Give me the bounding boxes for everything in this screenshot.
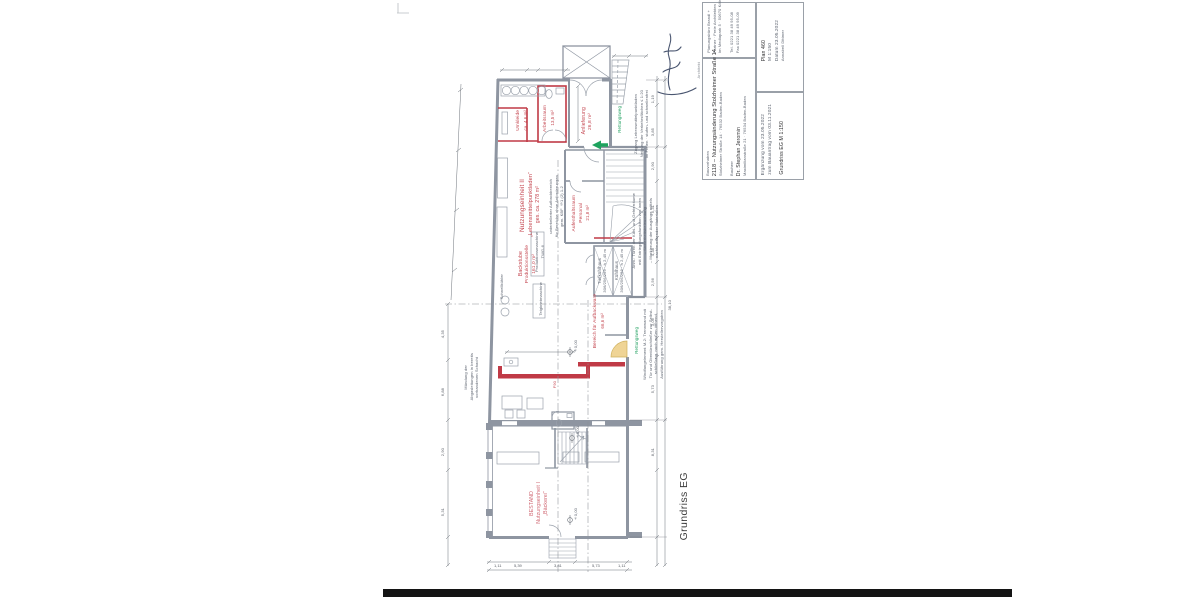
- dim-left: 5,31: [441, 508, 446, 516]
- dim-right: 3,85: [651, 128, 656, 136]
- revision-line: Ergänzung vom 23.05.2022: [761, 114, 767, 175]
- note-windfang: Windfangelement M-2: Trennwand mit Tür u…: [643, 302, 665, 386]
- dim-right: 1,19: [651, 95, 656, 103]
- unit-name: Nutzungseinheit I: [536, 482, 542, 524]
- unit-status: BESTAND: [529, 491, 535, 516]
- client-label: Bauherr: [730, 161, 735, 176]
- walls-existing: [488, 79, 646, 538]
- unit-use: „Bäckerei“: [543, 491, 549, 516]
- revision-info: Ergänzung vom 23.05.2022 zum Bauantrag v…: [761, 97, 785, 175]
- note-line: Anm.: Türen der Kühl- und Gefrierräume: [632, 193, 637, 269]
- loading-canopy: [563, 46, 610, 78]
- room-area: 21,8 m²: [585, 205, 590, 221]
- room-area: 13,5 m²: [550, 110, 555, 126]
- revision-line: zum Bauantrag vom 03.11.2021: [768, 104, 774, 175]
- room-label-aufbackware: Bereich für Aufbackware 66,6 m²: [593, 300, 605, 342]
- room-label-nutzungseinheit-2: Nutzungseinheit II „Lebensmittelpunktlad…: [519, 176, 541, 234]
- level-mark-1: ±0,00: [574, 340, 579, 353]
- room-name: Aufenthaltsraum: [572, 195, 578, 231]
- dim-right: 4,38: [651, 248, 656, 256]
- label-produktionsmaschine: Produktionsmaschine TWG-6: [535, 229, 545, 275]
- room-name2: Produktionsstelle: [525, 245, 531, 283]
- dim-bottom: 3,81: [554, 563, 562, 568]
- room-name: Umkleide: [516, 110, 522, 131]
- room-label-tiefkuehlhaus: Tiefkühlhaus 306/256/256 · h 2,45 m: [597, 247, 608, 295]
- level-mark-3: ±0,00: [574, 508, 579, 521]
- room-label-anlieferung: Anlieferung 26,8 m²: [581, 98, 594, 144]
- room-label-umkleide: Umkleide ca. 4,6 m²: [516, 98, 528, 142]
- room-name2: Personal: [579, 203, 585, 223]
- room-label-kuehlhaus: Kühlhaus 306/256/256 · h 2,45 m: [614, 247, 625, 295]
- room-dims: 306/256/256 · h 2,45 m: [620, 249, 625, 293]
- room-name: Bereich für Aufbackware: [593, 294, 599, 348]
- room-label-arbeitsraum: Arbeitsraum 13,5 m²: [543, 95, 555, 141]
- note-line: Mündung der: [464, 365, 469, 390]
- dim-bottom: 1,11: [494, 563, 502, 568]
- scan-edge-bar: [383, 589, 1012, 597]
- machine-name: Produktionsmaschine: [535, 232, 540, 272]
- note-line: unterkellerter Aufbackbereich: [549, 179, 554, 234]
- dim-right: 3,06: [651, 318, 656, 326]
- room-name: Backstube: [518, 251, 524, 276]
- label-teigknetmaschine: Teigknetmaschine: [539, 282, 544, 316]
- label-rettungsweg-top: Rettungsweg: [617, 106, 622, 133]
- client-name: Dr. Stephan Jeromin: [736, 127, 742, 176]
- project-info: Bauvorhaben 2118 – Nutzungsänderung Stol…: [706, 62, 748, 176]
- note-zugang: Zugang Lebensmittelpunktladen Neigung de…: [634, 100, 650, 148]
- plan-author: Annabell Dittmer: [781, 30, 786, 61]
- project-address: Stolzheimer Straße 14 · 76532 Baden-Bade…: [719, 92, 724, 176]
- dim-right: 5,73: [651, 385, 656, 393]
- scanned-plan-sheet: Umkleide ca. 4,6 m² Arbeitsraum 13,5 m² …: [0, 0, 1200, 600]
- note-line: gem. KBF §1 (2) 1-2: [560, 186, 565, 227]
- plan-scale: M 1:150: [768, 43, 774, 61]
- dim-right: 8,31: [651, 448, 656, 456]
- room-name: Arbeitsraum: [543, 105, 549, 132]
- note-aufbackbereich: unterkellerter Aufbackbereich für Bereic…: [549, 176, 565, 236]
- entry-ramp: [612, 60, 629, 104]
- emergency-exit-door: [611, 341, 627, 357]
- label-schnellkuehler: Schnellkühler: [500, 274, 505, 299]
- level-mark-2: ±0,00: [576, 426, 581, 439]
- label-f90-b: F90: [553, 381, 558, 388]
- note-line: vorhandenen Schacht: [475, 357, 480, 398]
- dim-right: 2,56: [651, 278, 656, 286]
- revision-drawing: Grundriss EG M 1:150: [779, 121, 785, 175]
- room-area: 26,8 m²: [588, 113, 594, 130]
- machine-type: TWG-6: [541, 245, 546, 258]
- dim-bottom: 5,39: [514, 563, 522, 568]
- room-dims: 306/256/256 · h 2,45 m: [603, 249, 608, 293]
- titleblock-architect-box: Planungsbüro Brandl + Partner · Freie Ar…: [702, 2, 756, 58]
- signature-caption: Architekt: [697, 62, 702, 78]
- dim-left: 6,88: [441, 388, 446, 396]
- room-label-bestand-baeckerei: BESTAND Nutzungseinheit I „Bäckerei“: [529, 474, 549, 532]
- project-label: Bauvorhaben: [706, 151, 711, 176]
- label-rettungsweg-exit: Rettungsweg: [634, 327, 639, 354]
- wall-fills: [486, 420, 642, 538]
- dim-right: 2,90: [651, 162, 656, 170]
- plan-number: Plan 460: [761, 40, 767, 61]
- note-line: Windfangelement M-2: Trennwand mit: [643, 309, 648, 380]
- room-name: Anlieferung: [581, 107, 587, 134]
- note-line: Ausführung gem. Herstellervorgaben: [660, 310, 665, 379]
- architect-info: Planungsbüro Brandl + Partner · Freie Ar…: [707, 7, 741, 53]
- dim-bottom: 1,11: [618, 563, 626, 568]
- architect-signature: [658, 34, 696, 95]
- plan-meta: Plan 460 M 1:150 Datum 23.05.2022 Annabe…: [761, 7, 786, 61]
- label-f90-a: F90: [586, 366, 591, 373]
- unit-use: „Lebensmittelpunktladen“: [528, 172, 535, 237]
- architect-line: Im Mediapark 5 · 50670 Köln: [718, 0, 723, 53]
- unit-area: ges. ca. 278 m²: [535, 186, 541, 223]
- room-area: ca. 4,6 m²: [523, 110, 528, 131]
- architect-line: Planungsbüro Brandl +: [707, 10, 712, 53]
- titleblock-meta-box: Plan 460 M 1:150 Datum 23.05.2022 Annabe…: [756, 2, 804, 92]
- escape-route-arrow: [592, 141, 608, 150]
- unit-name: Nutzungseinheit II: [519, 179, 527, 232]
- dim-right: 5,31: [651, 205, 656, 213]
- note-line: Zugang Lebensmittelpunktladen: [634, 94, 639, 154]
- room-area: 66,6 m²: [600, 313, 605, 329]
- client-address: Maximilianstraße 21 · 76534 Baden-Baden: [743, 96, 748, 176]
- drawing-title-grundriss-eg: Grundriss EG: [678, 472, 690, 540]
- titleblock-revision-box: Ergänzung vom 23.05.2022 zum Bauantrag v…: [756, 92, 804, 180]
- level-markers: [568, 347, 575, 525]
- dim-bottom: 5,73: [592, 563, 600, 568]
- dim-right-total: 38,10: [668, 300, 673, 311]
- note-abgasleitungen: Mündung der Abgasleitungen in bereits vo…: [464, 350, 480, 404]
- room-label-aufenthaltsraum: Aufenthaltsraum Personal 21,8 m²: [572, 186, 591, 240]
- dim-left: 4,35: [441, 330, 446, 338]
- sheet-corner-mark: [397, 3, 409, 13]
- architect-fax: Fax 0221 38 49 95-09: [736, 12, 741, 53]
- walls-new-red-thick: [498, 362, 625, 379]
- dim-left: 2,90: [441, 448, 446, 456]
- titleblock-project-box: Bauvorhaben 2118 – Nutzungsänderung Stol…: [702, 58, 756, 180]
